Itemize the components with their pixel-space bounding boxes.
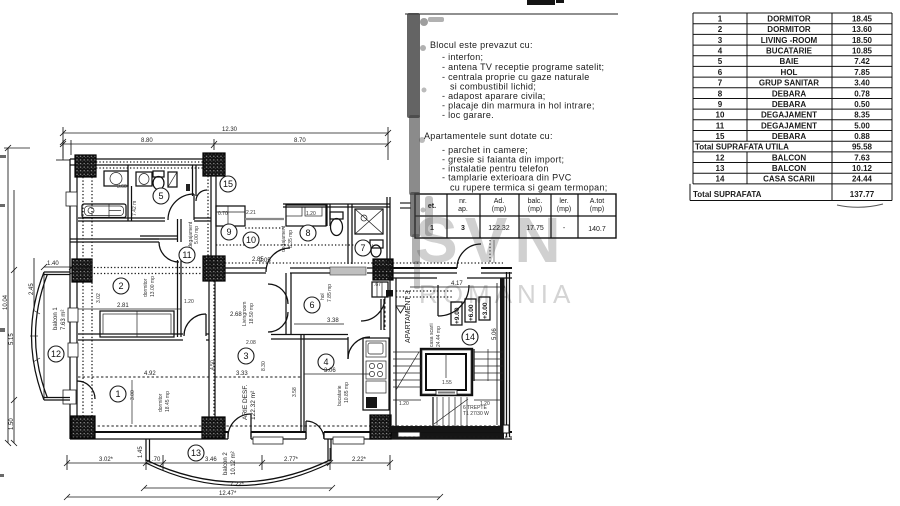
svg-text:1: 1 [718, 15, 723, 24]
svg-text:SVN: SVN [415, 204, 568, 276]
svg-text:bucatarie: bucatarie [337, 385, 343, 406]
svg-text:1.20: 1.20 [399, 401, 409, 407]
svg-text:HOL: HOL [781, 68, 798, 77]
svg-text:24.44 mp: 24.44 mp [436, 326, 442, 347]
svg-text:DORMITOR: DORMITOR [767, 25, 811, 34]
svg-text:- loc garare.: - loc garare. [442, 110, 494, 120]
svg-text:14: 14 [716, 175, 725, 184]
svg-text:- tamplarie exterioara din PV: - tamplarie exterioara din PVC [442, 173, 572, 183]
svg-text:2.05: 2.05 [259, 258, 271, 264]
svg-text:18.45 mp: 18.45 mp [165, 391, 171, 412]
svg-text:3.40: 3.40 [854, 79, 870, 88]
svg-text:7.63 m²: 7.63 m² [61, 310, 67, 330]
svg-text:(mp): (mp) [492, 206, 506, 213]
svg-text:balc.: balc. [528, 198, 543, 205]
svg-text:3.06: 3.06 [324, 368, 336, 374]
svg-text:2.08: 2.08 [246, 340, 256, 346]
svg-text:3.58: 3.58 [292, 387, 298, 397]
svg-text:10: 10 [716, 111, 725, 120]
svg-text:DEBARA: DEBARA [772, 132, 806, 141]
svg-text:balcon 1: balcon 1 [53, 307, 59, 330]
svg-text:4.92: 4.92 [144, 371, 156, 377]
svg-text:(mp): (mp) [557, 206, 571, 213]
svg-text:1.20: 1.20 [306, 211, 316, 217]
svg-text:- parchet in camere;: - parchet in camere; [442, 145, 528, 155]
svg-text:15: 15 [716, 132, 725, 141]
svg-text:0.50: 0.50 [854, 100, 870, 109]
svg-text:BALCON: BALCON [772, 153, 806, 162]
svg-text:3.02*: 3.02* [99, 457, 114, 463]
svg-text:degajament: degajament [281, 225, 287, 252]
svg-text:7.42 m: 7.42 m [132, 201, 138, 216]
svg-text:BALCON: BALCON [772, 164, 806, 173]
svg-text:4.17: 4.17 [451, 281, 463, 287]
svg-text:13.60: 13.60 [852, 25, 873, 34]
svg-text:Total SUPRAFATA UTILA: Total SUPRAFATA UTILA [695, 143, 789, 152]
svg-text:12.47*: 12.47* [219, 491, 237, 497]
svg-text:8.30: 8.30 [261, 361, 267, 371]
svg-text:4.50: 4.50 [210, 360, 216, 370]
svg-text:cu rupere termica si geam term: cu rupere termica si geam termopan; [450, 183, 608, 193]
svg-text:ap.: ap. [458, 206, 468, 213]
svg-text:7.63: 7.63 [854, 153, 870, 162]
svg-text:7.85: 7.85 [854, 68, 870, 77]
svg-text:Apartamentele sunt dotate cu:: Apartamentele sunt dotate cu: [424, 131, 553, 141]
svg-text:APARTAMENT 3: APARTAMENT 3 [405, 291, 412, 343]
svg-text:1.50: 1.50 [9, 418, 15, 430]
svg-text:2.45: 2.45 [29, 283, 35, 295]
svg-text:8.80: 8.80 [141, 138, 153, 144]
svg-text:ler.: ler. [559, 198, 568, 205]
svg-text:+3.00: +3.00 [482, 302, 489, 319]
svg-text:7: 7 [360, 243, 365, 253]
svg-text:dormitor: dormitor [158, 393, 164, 412]
svg-text:- interfon;: - interfon; [442, 52, 483, 62]
svg-text:Livingroom: Livingroom [242, 302, 248, 326]
svg-text:137.77: 137.77 [850, 190, 875, 199]
svg-text:Ad.: Ad. [494, 198, 505, 205]
svg-text:3.00: 3.00 [130, 390, 136, 400]
svg-text:+9.00: +9.00 [454, 307, 461, 324]
svg-text:1.55: 1.55 [442, 380, 452, 386]
svg-text:8.35 mp: 8.35 mp [288, 230, 294, 248]
svg-text:3: 3 [718, 36, 723, 45]
svg-text:ARIE DESF.: ARIE DESF. [242, 384, 249, 420]
svg-text:LIVING -ROOM: LIVING -ROOM [761, 36, 818, 45]
svg-text:3.46: 3.46 [205, 457, 217, 463]
svg-text:140.7: 140.7 [588, 226, 606, 233]
svg-text:3.38: 3.38 [327, 318, 339, 324]
svg-text:2: 2 [718, 25, 723, 34]
svg-text:13: 13 [191, 448, 201, 458]
svg-text:15: 15 [223, 179, 233, 189]
svg-text:Blocul este prevazut cu:: Blocul este prevazut cu: [430, 40, 533, 50]
svg-text:13: 13 [716, 164, 725, 173]
svg-text:24.44: 24.44 [852, 175, 873, 184]
svg-text:17.75: 17.75 [526, 225, 544, 232]
svg-text:18.50 mp: 18.50 mp [249, 303, 255, 324]
svg-text:balcon 2: balcon 2 [223, 452, 229, 475]
svg-text:12: 12 [716, 153, 725, 162]
svg-text:9: 9 [718, 100, 723, 109]
svg-text:2: 2 [118, 281, 123, 291]
svg-text:2.81: 2.81 [117, 303, 129, 309]
svg-text:casa scarii: casa scarii [429, 323, 435, 347]
svg-text:hol: hol [320, 293, 326, 300]
svg-text:18.50: 18.50 [852, 36, 873, 45]
svg-text:5.00: 5.00 [854, 121, 870, 130]
svg-text:3.02: 3.02 [96, 293, 102, 303]
svg-text:7: 7 [718, 79, 723, 88]
svg-text:122.32 m²: 122.32 m² [250, 390, 257, 420]
svg-text:DEGAJAMENT: DEGAJAMENT [761, 121, 817, 130]
svg-text:11: 11 [182, 250, 191, 260]
svg-text:5: 5 [718, 57, 723, 66]
svg-text:5.15: 5.15 [9, 333, 15, 345]
svg-text:9: 9 [226, 227, 231, 237]
svg-text:Total SUPRAFATA: Total SUPRAFATA [693, 190, 762, 199]
svg-text:18.45: 18.45 [852, 15, 873, 24]
svg-text:- antena TV receptie programe: - antena TV receptie programe satelit; [442, 62, 604, 72]
svg-text:+6.00: +6.00 [468, 304, 475, 321]
svg-text:10.12: 10.12 [852, 164, 873, 173]
svg-text:10.85 mp: 10.85 mp [344, 382, 350, 403]
svg-text:CASA SCARII: CASA SCARII [763, 175, 815, 184]
svg-text:dormitor: dormitor [143, 278, 149, 297]
svg-text:3.33: 3.33 [236, 371, 248, 377]
svg-text:DORMITOR: DORMITOR [767, 15, 811, 24]
svg-text:nr.: nr. [459, 198, 467, 205]
svg-text:8.70: 8.70 [294, 138, 306, 144]
svg-text:3: 3 [461, 225, 465, 232]
svg-text:14: 14 [465, 332, 475, 342]
svg-text:11: 11 [716, 121, 725, 130]
svg-text:3.60: 3.60 [117, 184, 127, 190]
svg-text:1: 1 [115, 389, 120, 399]
svg-text:- adapost aparare civila;: - adapost aparare civila; [442, 91, 546, 101]
svg-text:BAIE: BAIE [779, 57, 799, 66]
svg-text:13.00 mp: 13.00 mp [150, 276, 156, 297]
svg-text:6: 6 [309, 300, 314, 310]
svg-text:12.30: 12.30 [222, 127, 238, 133]
svg-text:2.68: 2.68 [230, 312, 242, 318]
svg-text:12: 12 [51, 349, 61, 359]
svg-text:GRUP SANITAR: GRUP SANITAR [759, 79, 819, 88]
svg-text:10.12 m²: 10.12 m² [231, 451, 237, 475]
svg-text:6: 6 [718, 68, 723, 77]
svg-text:4: 4 [323, 357, 328, 367]
svg-text:7.85 mp: 7.85 mp [327, 284, 333, 302]
svg-text:BUCATARIE: BUCATARIE [766, 47, 813, 56]
svg-text:2.22*: 2.22* [352, 457, 367, 463]
svg-text:T1 27/30 W: T1 27/30 W [463, 411, 489, 417]
svg-text:- placaje din marmura in hol: - placaje din marmura in hol intrare; [442, 101, 595, 111]
svg-text:si combustibil lichid;: si combustibil lichid; [450, 82, 536, 92]
svg-text:95.58: 95.58 [852, 143, 873, 152]
svg-text:0.88: 0.88 [854, 132, 870, 141]
svg-text:5.00 mp: 5.00 mp [194, 226, 200, 244]
svg-text:10.85: 10.85 [852, 47, 873, 56]
svg-text:3: 3 [243, 351, 248, 361]
svg-text:1.45: 1.45 [138, 446, 144, 458]
svg-text:10.04: 10.04 [3, 294, 9, 310]
svg-text:0.78: 0.78 [854, 89, 870, 98]
svg-text:7.42: 7.42 [854, 57, 870, 66]
svg-text:5.06: 5.06 [492, 328, 498, 340]
svg-text:- centrala proprie cu gaze na: - centrala proprie cu gaze naturale [442, 72, 590, 82]
svg-text:2.77*: 2.77* [284, 457, 299, 463]
svg-text:A.tot: A.tot [590, 198, 604, 205]
svg-text:(mp): (mp) [590, 206, 604, 213]
svg-text:5: 5 [158, 191, 163, 201]
svg-text:0.70: 0.70 [218, 211, 228, 217]
svg-text:10: 10 [246, 235, 256, 245]
svg-text:DEBARA: DEBARA [772, 89, 806, 98]
svg-text:.67: .67 [374, 282, 381, 288]
svg-text:DEBARA: DEBARA [772, 100, 806, 109]
svg-text:122.32: 122.32 [488, 225, 510, 232]
svg-text:DEGAJAMENT: DEGAJAMENT [761, 111, 817, 120]
svg-text:(mp): (mp) [528, 206, 542, 213]
svg-text:1.40: 1.40 [47, 261, 59, 267]
svg-text:8: 8 [718, 89, 723, 98]
svg-text:8: 8 [305, 228, 310, 238]
svg-text:.70: .70 [152, 457, 161, 463]
svg-text:8.35: 8.35 [854, 111, 870, 120]
svg-text:1.20: 1.20 [184, 299, 194, 305]
svg-text:4: 4 [718, 47, 723, 56]
svg-text:2.21: 2.21 [246, 210, 256, 216]
